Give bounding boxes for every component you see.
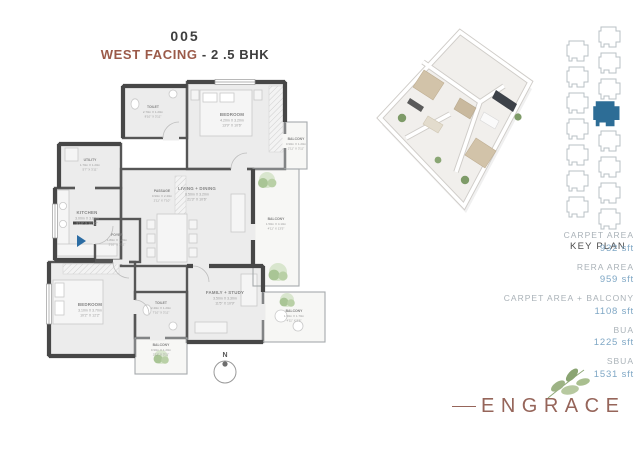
- svg-text:2'11" X 3'11": 2'11" X 3'11": [153, 353, 170, 357]
- svg-text:KITCHEN: KITCHEN: [77, 210, 98, 215]
- svg-text:8'10" X 3'11": 8'10" X 3'11": [145, 115, 162, 119]
- svg-text:13'9" X 10'6": 13'9" X 10'6": [222, 124, 243, 128]
- svg-text:0.90m X 2.40m: 0.90m X 2.40m: [152, 194, 173, 198]
- svg-text:BALCONY: BALCONY: [288, 137, 306, 141]
- svg-text:1.50m X 1.70m: 1.50m X 1.70m: [284, 314, 305, 318]
- svg-text:PASSAGE: PASSAGE: [154, 189, 171, 193]
- key-plan-units: [567, 27, 620, 229]
- area-label: BUA: [464, 325, 634, 335]
- title-block: 005 WEST FACING - 2 .5 BHK: [35, 28, 335, 62]
- svg-text:BEDROOM: BEDROOM: [220, 112, 244, 117]
- svg-text:11'5" X 10'9": 11'5" X 10'9": [215, 302, 235, 306]
- facing-label: WEST FACING: [101, 47, 198, 62]
- key-plan: KEY PLAN: [556, 24, 640, 252]
- north-label: N: [222, 352, 227, 359]
- north-indicator: N: [214, 352, 236, 383]
- svg-text:1.70m X 1.20m: 1.70m X 1.20m: [80, 163, 101, 167]
- page-title: WEST FACING - 2 .5 BHK: [35, 47, 335, 62]
- svg-text:FOYER: FOYER: [111, 233, 123, 237]
- svg-text:BALCONY: BALCONY: [286, 309, 304, 313]
- svg-text:7'10" X 3'11": 7'10" X 3'11": [153, 311, 170, 315]
- svg-text:TOILET: TOILET: [147, 105, 160, 109]
- area-value: 1225 sft: [464, 337, 634, 348]
- area-item-bua: BUA 1225 sft: [464, 325, 634, 349]
- svg-text:BEDROOM: BEDROOM: [78, 302, 102, 307]
- key-plan-highlighted-unit: [593, 101, 619, 126]
- svg-text:5'10" X 3'11": 5'10" X 3'11": [109, 243, 126, 247]
- brand-name: ENGRACE: [481, 395, 625, 418]
- render-3d-drawing: [368, 20, 536, 218]
- svg-text:1.80m X 1.20m: 1.80m X 1.20m: [107, 238, 128, 242]
- brand-logo: ENGRACE: [452, 366, 618, 424]
- area-label: RERA AREA: [464, 262, 634, 272]
- area-value: 959 sft: [464, 274, 634, 285]
- area-label: SBUA: [464, 356, 634, 366]
- floor-plan-2d-drawing: TOILET 2.70m X 1.20m 8'10" X 3'11" BEDRO…: [35, 74, 335, 394]
- svg-text:FAMILY + STUDY: FAMILY + STUDY: [206, 290, 244, 295]
- floor-plan-page: 005 WEST FACING - 2 .5 BHK: [0, 0, 640, 450]
- svg-text:TOILET: TOILET: [155, 301, 168, 305]
- area-label: CARPET AREA + BALCONY: [464, 293, 634, 303]
- svg-text:21'3" X 10'6": 21'3" X 10'6": [187, 198, 208, 202]
- area-item-carpet-balcony: CARPET AREA + BALCONY 1108 sft: [464, 293, 634, 317]
- area-label: CARPET AREA: [464, 230, 634, 240]
- svg-text:UTILITY: UTILITY: [84, 158, 98, 162]
- area-details: CARPET AREA 932 sft RERA AREA 959 sft CA…: [464, 230, 634, 388]
- svg-text:4'11" X 13'5": 4'11" X 13'5": [268, 227, 285, 231]
- svg-text:3.10m X 3.70m: 3.10m X 3.70m: [78, 309, 102, 313]
- unit-type-label: - 2 .5 BHK: [202, 47, 269, 62]
- svg-text:6.50m X 3.20m: 6.50m X 3.20m: [185, 193, 209, 197]
- floor-plan-2d: TOILET 2.70m X 1.20m 8'10" X 3'11" BEDRO…: [35, 74, 335, 394]
- area-value: 1108 sft: [464, 306, 634, 317]
- brand-row: ENGRACE: [452, 395, 625, 418]
- area-value: 932 sft: [464, 243, 634, 254]
- svg-text:BALCONY: BALCONY: [153, 343, 171, 347]
- key-plan-drawing: [558, 24, 638, 232]
- svg-text:5'7" X 3'11": 5'7" X 3'11": [82, 168, 97, 172]
- svg-text:10'2" X 12'2": 10'2" X 12'2": [80, 314, 101, 318]
- svg-text:BALCONY: BALCONY: [268, 217, 286, 221]
- svg-text:0.90m X 1.20m: 0.90m X 1.20m: [151, 348, 172, 352]
- area-item-carpet: CARPET AREA 932 sft: [464, 230, 634, 254]
- svg-text:2'11" X 3'11": 2'11" X 3'11": [288, 147, 305, 151]
- svg-text:2.40m X 1.20m: 2.40m X 1.20m: [151, 306, 172, 310]
- svg-text:2.70m X 1.20m: 2.70m X 1.20m: [143, 110, 164, 114]
- brand-rule: [452, 406, 476, 408]
- svg-text:LIVING + DINING: LIVING + DINING: [178, 186, 216, 191]
- svg-text:0.90m X 1.20m: 0.90m X 1.20m: [286, 142, 307, 146]
- unit-number: 005: [35, 28, 335, 44]
- floor-plan-3d-render: [368, 20, 536, 218]
- svg-text:4.20m X 3.20m: 4.20m X 3.20m: [220, 119, 244, 123]
- svg-text:3.50m X 3.30m: 3.50m X 3.30m: [213, 297, 237, 301]
- area-item-rera: RERA AREA 959 sft: [464, 262, 634, 286]
- svg-text:9'10" X 11'10": 9'10" X 11'10": [76, 222, 98, 226]
- svg-text:2'11" X 7'10": 2'11" X 7'10": [154, 199, 171, 203]
- svg-text:1.50m X 4.10m: 1.50m X 4.10m: [266, 222, 287, 226]
- svg-text:4'11" X 5'6": 4'11" X 5'6": [286, 319, 301, 323]
- svg-text:3.00m X 3.60m: 3.00m X 3.60m: [75, 217, 99, 221]
